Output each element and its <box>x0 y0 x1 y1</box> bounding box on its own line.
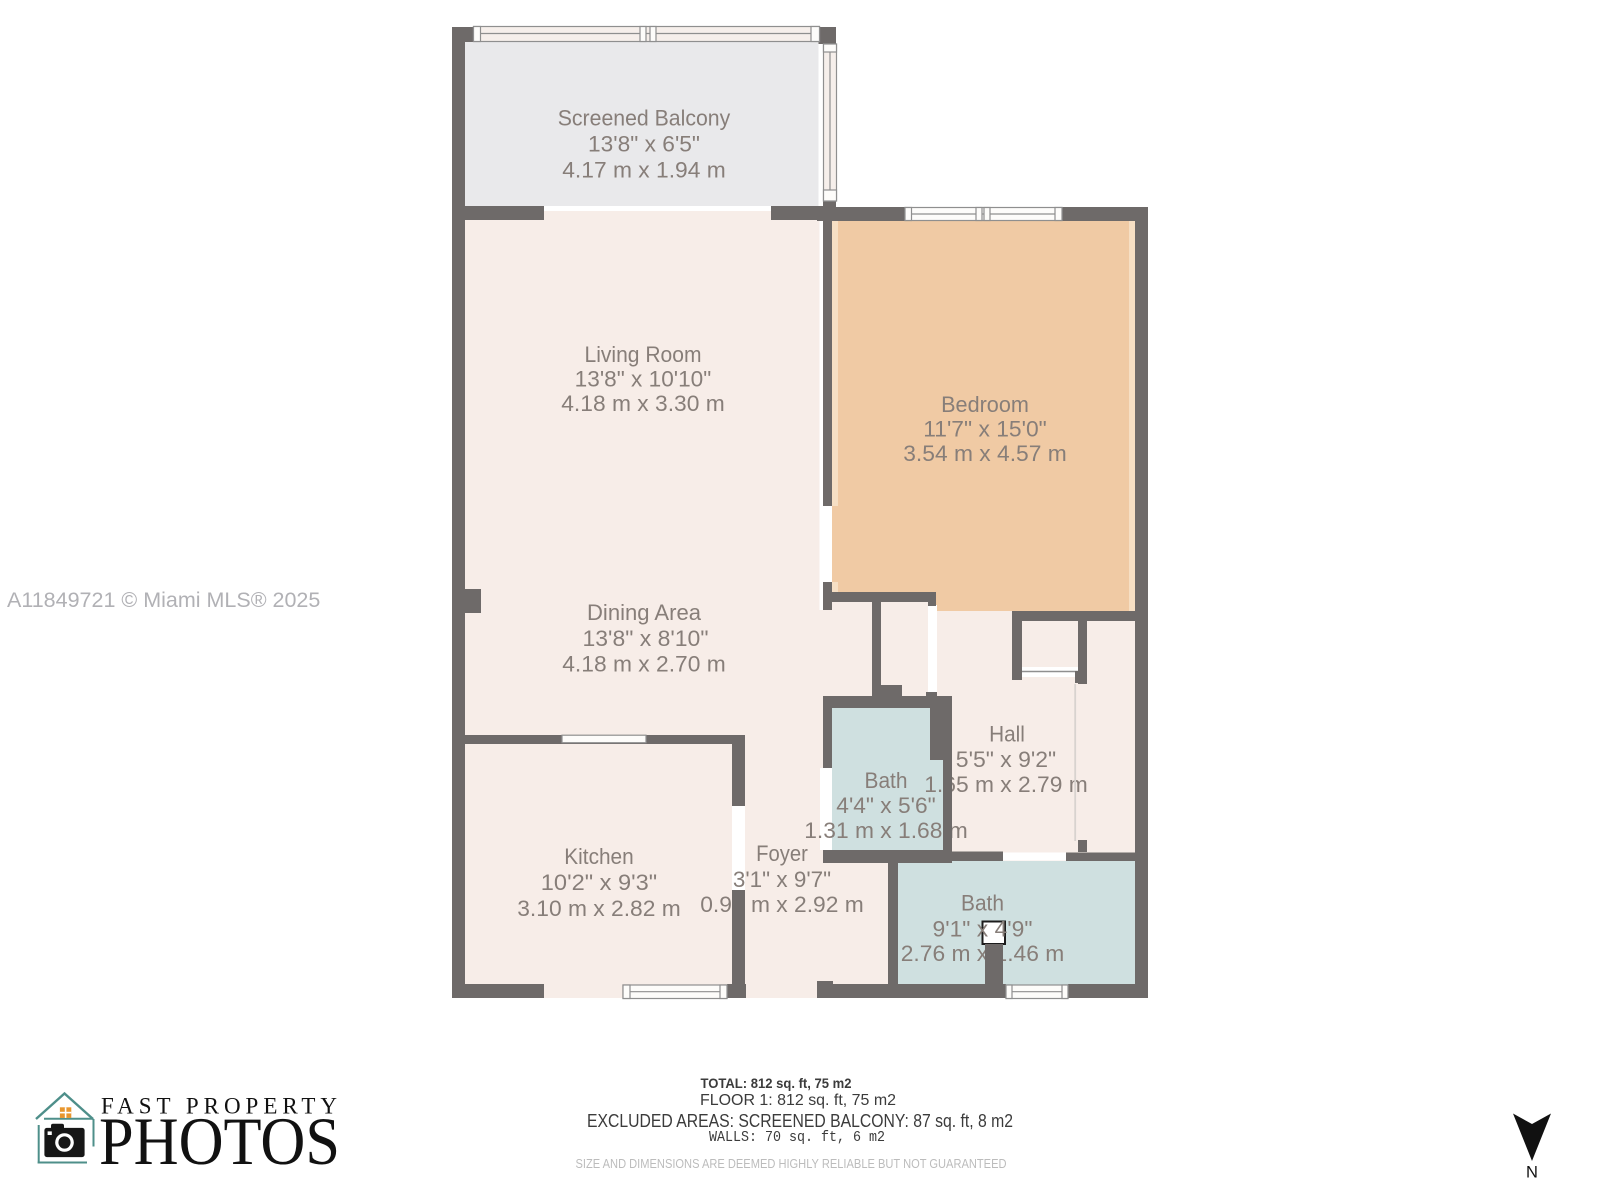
svg-text:Dining Area: Dining Area <box>587 600 701 625</box>
svg-text:2.76 m x 1.46 m: 2.76 m x 1.46 m <box>901 941 1065 966</box>
svg-text:13'8" x 8'10": 13'8" x 8'10" <box>583 626 709 651</box>
svg-text:A11849721 © Miami MLS® 2025: A11849721 © Miami MLS® 2025 <box>7 588 320 612</box>
svg-text:4.18 m x 2.70 m: 4.18 m x 2.70 m <box>562 652 726 677</box>
svg-text:Living Room: Living Room <box>585 342 702 367</box>
svg-text:5'5" x 9'2": 5'5" x 9'2" <box>956 747 1056 772</box>
svg-text:Hall: Hall <box>989 722 1025 747</box>
svg-text:Bedroom: Bedroom <box>941 392 1029 417</box>
svg-text:Kitchen: Kitchen <box>564 844 633 869</box>
svg-text:3'1" x 9'7": 3'1" x 9'7" <box>733 867 831 892</box>
svg-text:EXCLUDED AREAS: SCREENED BALCO: EXCLUDED AREAS: SCREENED BALCONY: 87 sq.… <box>587 1110 1013 1131</box>
svg-text:FLOOR 1: 812 sq. ft, 75 m2: FLOOR 1: 812 sq. ft, 75 m2 <box>700 1092 896 1109</box>
svg-text:3.54 m x 4.57 m: 3.54 m x 4.57 m <box>903 441 1067 466</box>
svg-text:Screened Balcony: Screened Balcony <box>558 106 731 131</box>
svg-text:3.10 m x 2.82 m: 3.10 m x 2.82 m <box>517 896 681 921</box>
svg-text:11'7" x 15'0": 11'7" x 15'0" <box>923 417 1047 442</box>
svg-text:13'8" x 6'5": 13'8" x 6'5" <box>588 132 700 157</box>
svg-text:4.17 m x 1.94 m: 4.17 m x 1.94 m <box>562 158 726 183</box>
svg-text:Bath: Bath <box>961 891 1004 916</box>
svg-text:WALLS: 70 sq. ft, 6 m2: WALLS: 70 sq. ft, 6 m2 <box>709 1129 885 1146</box>
svg-text:13'8" x 10'10": 13'8" x 10'10" <box>575 367 712 392</box>
svg-text:9'1" x 4'9": 9'1" x 4'9" <box>933 917 1033 942</box>
svg-text:4'4" x 5'6": 4'4" x 5'6" <box>836 793 935 818</box>
svg-text:TOTAL: 812 sq. ft, 75 m2: TOTAL: 812 sq. ft, 75 m2 <box>701 1076 852 1091</box>
svg-text:SIZE AND DIMENSIONS ARE DEEMED: SIZE AND DIMENSIONS ARE DEEMED HIGHLY RE… <box>576 1156 1007 1171</box>
svg-text:Foyer: Foyer <box>756 841 808 866</box>
svg-text:0.95 m x 2.92 m: 0.95 m x 2.92 m <box>700 892 864 917</box>
svg-text:N: N <box>1526 1164 1538 1182</box>
svg-text:4.18 m x 3.30 m: 4.18 m x 3.30 m <box>561 391 725 416</box>
svg-text:Bath: Bath <box>865 768 908 793</box>
svg-text:PHOTOS: PHOTOS <box>99 1103 340 1179</box>
svg-text:10'2" x 9'3": 10'2" x 9'3" <box>541 870 657 895</box>
